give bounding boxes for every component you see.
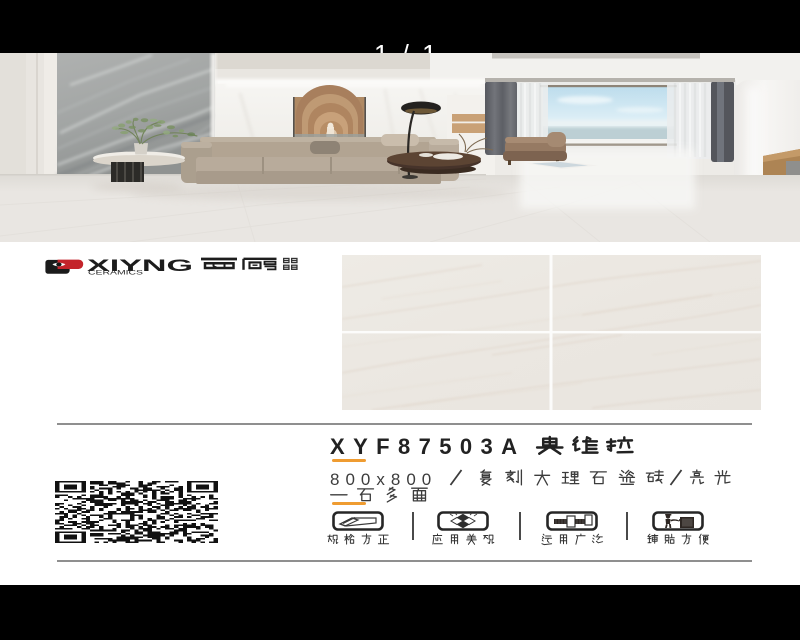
svg-text:CERAMICS: CERAMICS xyxy=(88,270,143,277)
